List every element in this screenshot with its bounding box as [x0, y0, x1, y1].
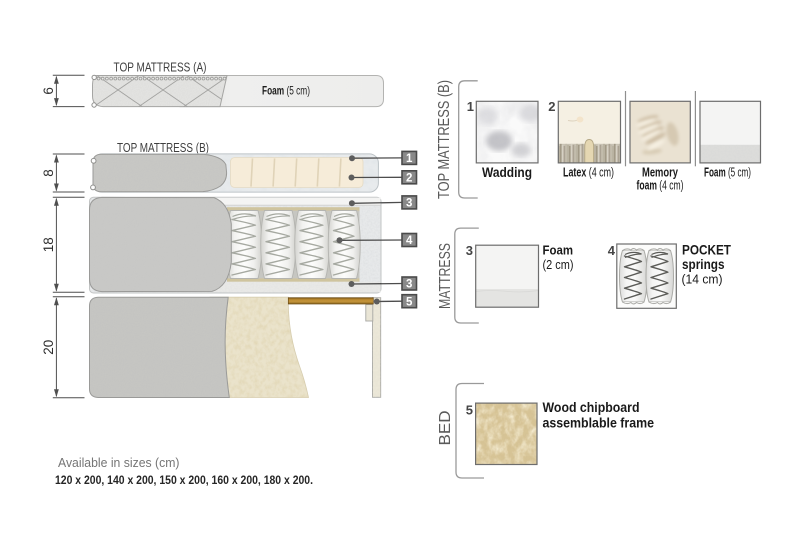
svg-text:TOP MATTRESS (B): TOP MATTRESS (B): [436, 80, 453, 199]
svg-text:Wood chipboard: Wood chipboard: [543, 400, 640, 415]
svg-text:(2 cm): (2 cm): [543, 257, 574, 272]
svg-text:Foam (5 cm): Foam (5 cm): [262, 84, 310, 98]
svg-text:20: 20: [41, 340, 56, 355]
svg-text:6: 6: [41, 87, 56, 95]
svg-text:Foam (5 cm): Foam (5 cm): [704, 166, 751, 180]
svg-text:3: 3: [466, 243, 473, 258]
svg-text:2: 2: [406, 173, 412, 185]
svg-text:Wadding: Wadding: [482, 165, 532, 180]
svg-text:Latex (4 cm): Latex (4 cm): [563, 166, 614, 180]
svg-text:4: 4: [406, 235, 413, 247]
svg-text:assemblable frame: assemblable frame: [543, 416, 655, 431]
svg-text:MATTRESS: MATTRESS: [437, 243, 454, 309]
svg-text:8: 8: [41, 169, 56, 177]
svg-text:BED: BED: [437, 411, 454, 446]
svg-text:1: 1: [467, 99, 474, 114]
svg-text:3: 3: [406, 198, 412, 210]
svg-text:(14 cm): (14 cm): [682, 272, 723, 287]
svg-text:18: 18: [41, 237, 56, 252]
svg-text:Memory: Memory: [642, 166, 678, 180]
svg-text:TOP MATTRESS (A): TOP MATTRESS (A): [114, 61, 207, 75]
svg-text:POCKET: POCKET: [682, 243, 732, 258]
svg-text:2: 2: [548, 99, 555, 114]
svg-text:120 x 200, 140 x 200, 150 x 20: 120 x 200, 140 x 200, 150 x 200, 160 x 2…: [55, 473, 313, 487]
svg-text:4: 4: [608, 243, 616, 258]
svg-text:3: 3: [406, 279, 412, 291]
svg-text:foam (4 cm): foam (4 cm): [637, 179, 684, 193]
svg-text:1: 1: [406, 153, 413, 165]
svg-text:5: 5: [406, 296, 413, 308]
svg-text:Available in sizes (cm): Available in sizes (cm): [58, 455, 180, 470]
svg-text:TOP MATTRESS (B): TOP MATTRESS (B): [117, 141, 209, 155]
svg-text:springs: springs: [682, 257, 725, 272]
svg-text:5: 5: [466, 403, 473, 418]
svg-text:Foam: Foam: [543, 243, 574, 258]
